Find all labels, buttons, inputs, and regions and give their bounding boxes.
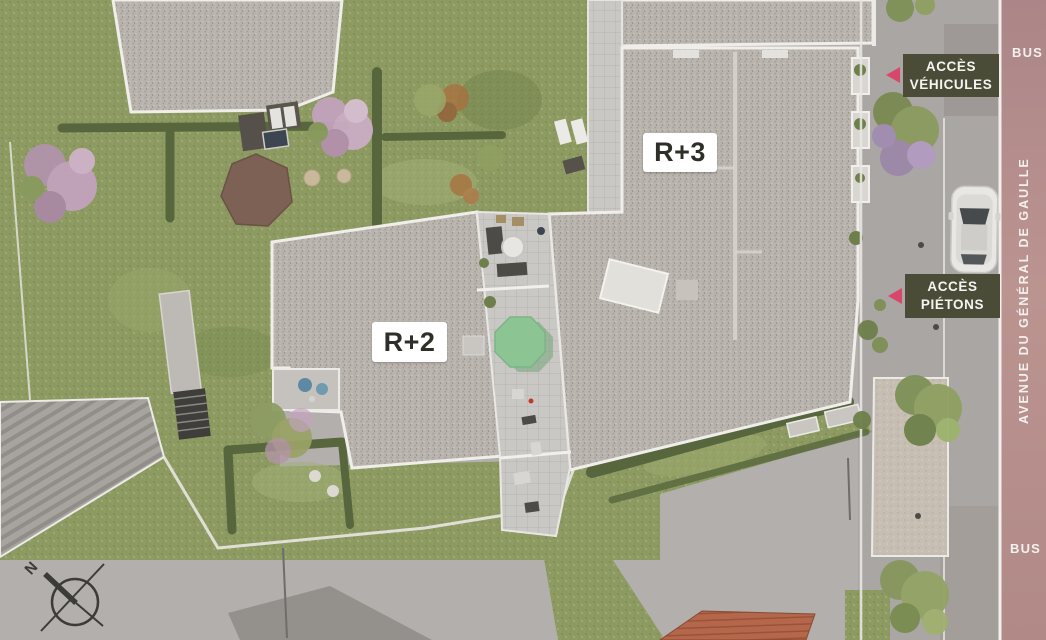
round-table <box>502 236 524 258</box>
access-vehicles-line2: VÉHICULES <box>910 76 993 94</box>
walkway <box>588 0 622 214</box>
street-name-label: AVENUE DU GÉNÉRAL DE GAULLE <box>1011 146 1037 436</box>
garden-stone <box>327 485 339 497</box>
garden-stone <box>337 169 351 183</box>
garden-stone <box>304 170 320 186</box>
lounger-blue <box>298 378 312 392</box>
table <box>512 389 524 399</box>
site-plan: R+3 R+2 ACCÈS VÉHICULES ACCÈS PIÉTONS BU… <box>0 0 1046 640</box>
roof-vent <box>463 336 484 355</box>
bus-label-top: BUS <box>1012 45 1043 60</box>
chair <box>496 215 506 223</box>
roof-vent <box>676 280 698 300</box>
parapet-line <box>872 0 876 46</box>
pedestrian <box>915 513 921 519</box>
chair <box>512 217 524 226</box>
sofa <box>497 262 528 277</box>
access-vehicles-badge: ACCÈS VÉHICULES <box>903 54 999 97</box>
car <box>947 186 1000 273</box>
pedestrian <box>933 324 939 330</box>
neighbour-roof-top-right <box>617 0 873 46</box>
bus-label-bottom: BUS <box>1010 541 1041 556</box>
building-label-r2: R+2 <box>372 322 447 362</box>
neighbour-roof-top-left <box>113 0 342 112</box>
access-vehicles-arrow-icon <box>886 67 900 83</box>
access-pedestrians-line1: ACCÈS <box>927 278 977 296</box>
access-pedestrians-arrow-icon <box>888 288 902 304</box>
building-label-r3: R+3 <box>643 133 717 172</box>
access-pedestrians-badge: ACCÈS PIÉTONS <box>905 274 1000 318</box>
plant <box>479 258 489 268</box>
garden-stairs <box>173 388 211 440</box>
access-vehicles-line1: ACCÈS <box>926 58 976 76</box>
lounger-blue <box>316 383 328 395</box>
parasol-green <box>495 317 545 367</box>
garden-stone <box>309 470 321 482</box>
site-plan-drawing <box>0 0 1046 640</box>
pedestrian <box>918 242 924 248</box>
access-pedestrians-line2: PIÉTONS <box>921 296 984 314</box>
